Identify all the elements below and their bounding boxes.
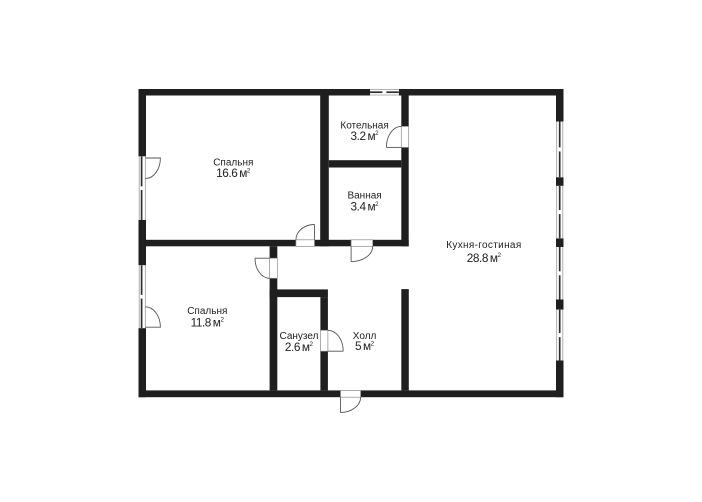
svg-text:3.4 м2: 3.4 м2 [351,200,380,214]
svg-text:3.2 м2: 3.2 м2 [351,129,380,143]
svg-text:16.6 м2: 16.6 м2 [216,166,251,180]
svg-text:11.8 м2: 11.8 м2 [191,316,225,330]
svg-text:2.6 м2: 2.6 м2 [285,340,314,354]
svg-text:Кухня-гостиная: Кухня-гостиная [446,240,521,251]
svg-text:28.8 м2: 28.8 м2 [467,251,502,265]
